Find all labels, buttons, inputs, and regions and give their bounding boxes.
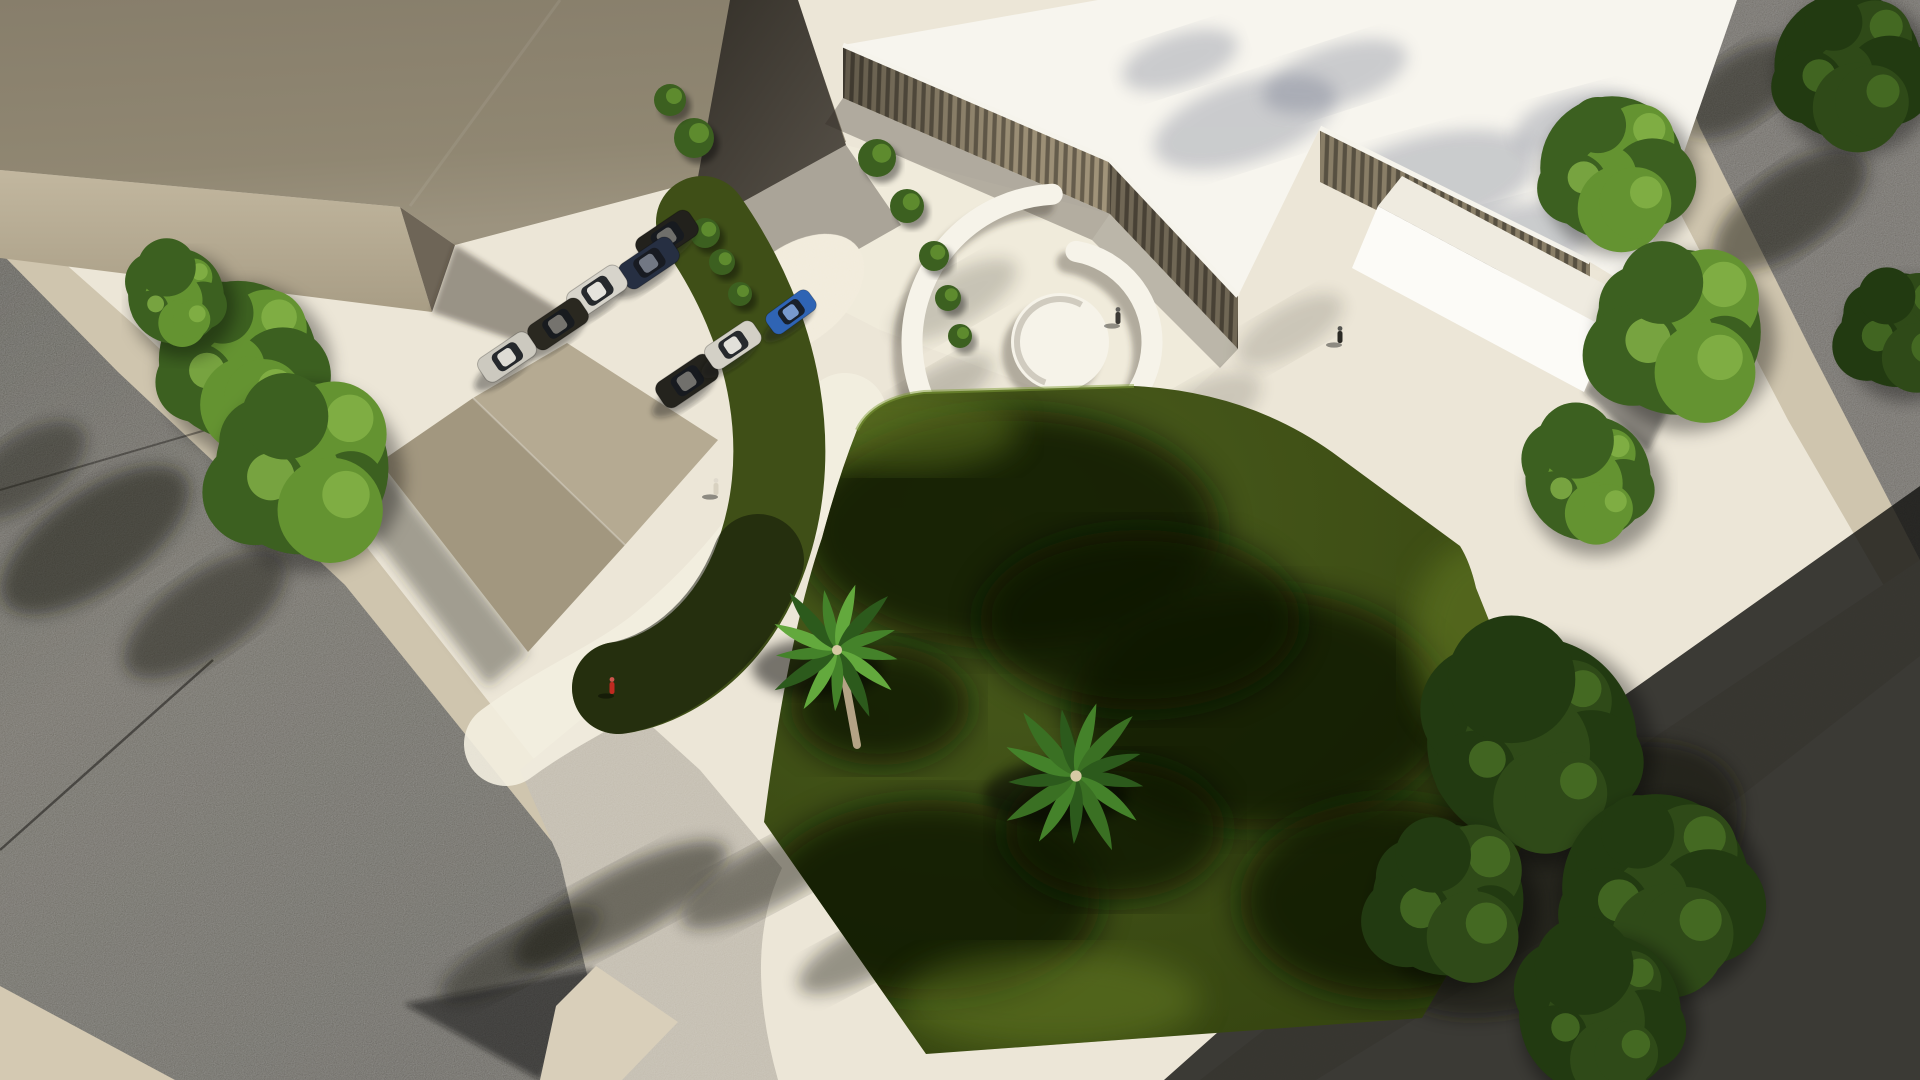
canopy-highlight xyxy=(1622,1030,1651,1059)
canopy-blob xyxy=(1620,241,1703,324)
canopy-highlight xyxy=(1550,477,1572,499)
canopy-highlight xyxy=(1605,490,1627,512)
person-body xyxy=(714,483,719,495)
person-body xyxy=(1338,331,1343,343)
canopy-highlight xyxy=(147,295,164,312)
canopy-highlight xyxy=(1469,741,1506,778)
canopy-highlight xyxy=(326,395,373,442)
canopy-highlight xyxy=(189,305,206,322)
canopy-blob xyxy=(1448,615,1576,743)
render-viewport xyxy=(0,0,1920,1080)
center-disc xyxy=(1011,293,1109,391)
person-head xyxy=(1116,307,1121,312)
person-shadow xyxy=(598,693,614,698)
canopy-blob xyxy=(1858,267,1915,324)
person-head xyxy=(610,677,615,682)
canopy-highlight xyxy=(1697,335,1742,380)
canopy-blob xyxy=(242,373,328,459)
canopy-blob xyxy=(138,238,196,296)
canopy-blob xyxy=(1396,817,1471,892)
person-shadow xyxy=(1104,323,1120,328)
canopy-blob xyxy=(1535,916,1634,1015)
bush-highlight xyxy=(930,245,945,260)
person-shadow xyxy=(1326,342,1342,347)
canopy-highlight xyxy=(1551,1013,1580,1042)
canopy-highlight xyxy=(1680,899,1722,941)
canopy-blob xyxy=(1570,97,1626,153)
bush-highlight xyxy=(737,285,749,297)
canopy-highlight xyxy=(1560,763,1597,800)
bush-highlight xyxy=(719,252,732,265)
canopy-blob xyxy=(1601,795,1674,868)
bush-highlight xyxy=(689,123,709,143)
person-shadow xyxy=(702,494,718,499)
palm-crown xyxy=(832,645,842,655)
canopy-highlight xyxy=(1701,262,1746,307)
person-head xyxy=(714,478,719,483)
lawn-shadow-patch xyxy=(980,530,1300,710)
palm-crown xyxy=(1070,770,1081,781)
bush-highlight xyxy=(666,88,682,104)
canopy-highlight xyxy=(322,471,369,518)
canopy-blob xyxy=(1538,403,1614,479)
bush-highlight xyxy=(957,327,969,339)
canopy-highlight xyxy=(1469,836,1510,877)
bush-highlight xyxy=(903,193,920,210)
person-head xyxy=(1338,326,1343,331)
canopy-highlight xyxy=(1466,902,1507,943)
canopy-highlight xyxy=(1630,176,1662,208)
bush-highlight xyxy=(945,288,958,301)
person-body xyxy=(610,682,615,694)
canopy-highlight xyxy=(1866,74,1899,107)
bush-highlight xyxy=(701,222,716,237)
person-body xyxy=(1116,312,1121,324)
architectural-aerial-render xyxy=(0,0,1920,1080)
bush-highlight xyxy=(872,144,891,163)
lawn-sun-patch xyxy=(900,950,1200,1050)
